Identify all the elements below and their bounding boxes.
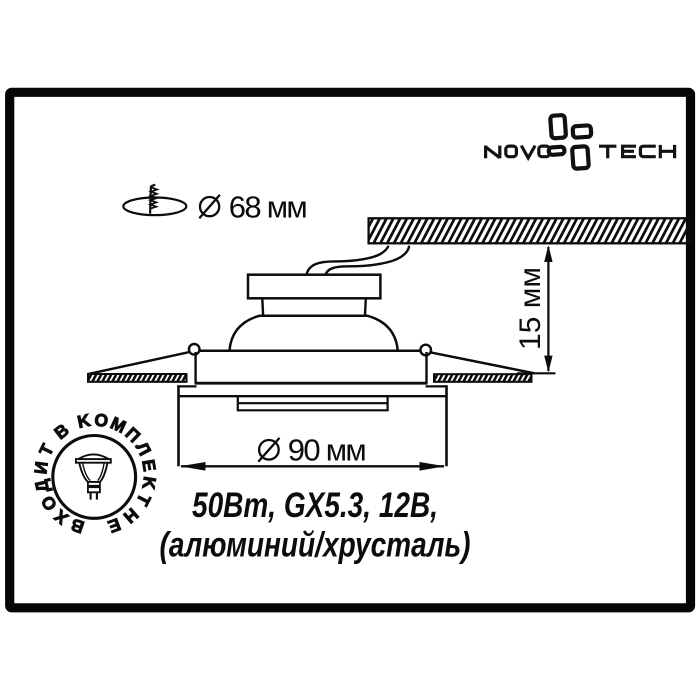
svg-text:И: И [30, 460, 51, 475]
svg-text:50Bm, GX5.3, 12B,: 50Bm, GX5.3, 12B, [192, 486, 438, 525]
svg-text:90 мм: 90 мм [288, 432, 366, 467]
svg-text:15 мм: 15 мм [514, 267, 547, 350]
svg-text:(алюминий/хрусталь): (алюминий/хрусталь) [160, 526, 471, 565]
svg-text:68 мм: 68 мм [229, 189, 307, 224]
svg-text:O: O [93, 409, 109, 430]
